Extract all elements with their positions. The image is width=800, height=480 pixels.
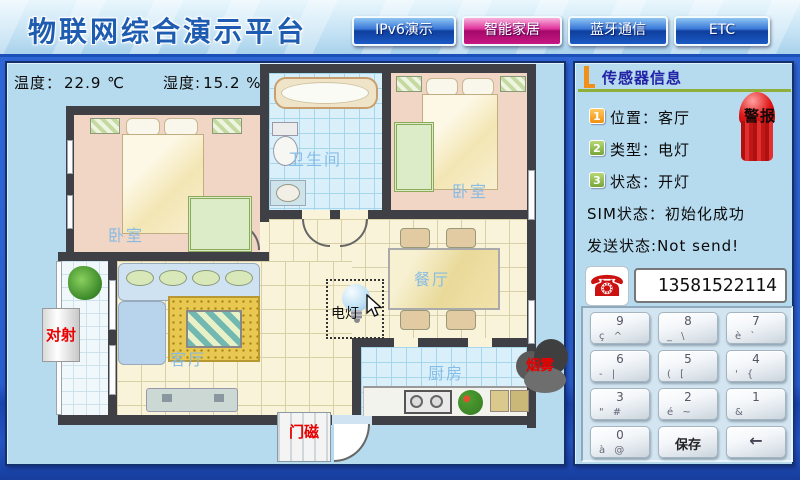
send-status-value: Not send! [657, 237, 739, 255]
humidity-label: 湿度: [163, 74, 201, 92]
section-bracket-icon [584, 66, 595, 88]
tab-etc[interactable]: ETC [674, 16, 770, 46]
key-main: 1 [727, 390, 785, 404]
tab-smart-home[interactable]: 智能家居 [462, 16, 562, 46]
phone-icon: ☎ [589, 269, 625, 303]
key-sub: è ` [735, 331, 758, 342]
alarm-label: 警报 [744, 105, 776, 126]
sim-status-label: SIM状态： [587, 205, 665, 223]
key-5[interactable]: 5( [ [658, 350, 718, 382]
backspace-icon: ← [727, 431, 785, 450]
key-6[interactable]: 6- | [590, 350, 650, 382]
door-magnet-device[interactable]: 门磁 [277, 412, 331, 462]
backspace-key[interactable]: ← [726, 426, 786, 458]
alarm-led-base [741, 121, 773, 161]
key-main: 5 [659, 352, 717, 366]
key-sub: _ \ [667, 331, 688, 342]
temperature-value: 22.9 ℃ [64, 74, 125, 92]
sensor-row-type: 类型：电灯 [610, 139, 690, 160]
key-main: 7 [727, 314, 785, 328]
key-sub: à @ [599, 445, 627, 456]
smoke-sensor-device[interactable]: 烟雾 [514, 335, 572, 395]
key-7[interactable]: 7è ` [726, 312, 786, 344]
send-status-row: 发送状态:Not send! [587, 235, 739, 256]
temperature-label: 温度： [14, 74, 62, 92]
floorplan-panel [5, 61, 566, 466]
humidity-value: 15.2 % [203, 74, 261, 92]
key-2[interactable]: 2é ~ [658, 388, 718, 420]
sensor-row-location: 位置：客厅 [610, 107, 690, 128]
key-main: 6 [591, 352, 649, 366]
key-9[interactable]: 9ç ^ [590, 312, 650, 344]
location-value: 客厅 [658, 109, 690, 127]
location-label: 位置： [610, 109, 658, 127]
smoke-label: 烟雾 [526, 355, 554, 375]
key-main: 8 [659, 314, 717, 328]
page-title: 物联网综合演示平台 [28, 10, 307, 50]
sim-status-value: 初始化成功 [665, 205, 745, 223]
key-1[interactable]: 1& [726, 388, 786, 420]
key-8[interactable]: 8_ \ [658, 312, 718, 344]
environment-readout: 温度：22.9 ℃湿度:15.2 % [14, 72, 264, 93]
key-3[interactable]: 3" # [590, 388, 650, 420]
tab-bluetooth[interactable]: 蓝牙通信 [568, 16, 668, 46]
row2-number-badge: 2 [589, 140, 605, 156]
phone-icon-box: ☎ [585, 266, 629, 306]
key-0[interactable]: 0à @ [590, 426, 650, 458]
key-main: 2 [659, 390, 717, 404]
tab-ipv6-demo[interactable]: IPv6演示 [352, 16, 456, 46]
key-4[interactable]: 4' { [726, 350, 786, 382]
key-main: 保存 [659, 434, 717, 453]
type-label: 类型： [610, 141, 658, 159]
key-main: 4 [727, 352, 785, 366]
row3-number-badge: 3 [589, 172, 605, 188]
iot-demo-app: 物联网综合演示平台 IPv6演示 智能家居 蓝牙通信 ETC 温度：22.9 ℃… [0, 0, 800, 480]
key-sub: - | [599, 369, 618, 380]
sim-status-row: SIM状态：初始化成功 [587, 203, 745, 224]
key-main: 9 [591, 314, 649, 328]
key-main: 3 [591, 390, 649, 404]
key-sub: " # [599, 407, 624, 418]
send-status-label: 发送状态: [587, 237, 657, 255]
key-main: 0 [591, 428, 649, 442]
key-sub: é ~ [667, 407, 694, 418]
top-header: 物联网综合演示平台 IPv6演示 智能家居 蓝牙通信 ETC [0, 0, 800, 57]
lamp-device[interactable]: 电灯 [326, 279, 384, 339]
lamp-label: 电灯 [331, 303, 359, 323]
beam-sensor-device[interactable]: 对射 [42, 308, 80, 362]
status-value: 开灯 [658, 173, 690, 191]
key-sub: ' { [735, 369, 756, 380]
type-value: 电灯 [658, 141, 690, 159]
row1-number-badge: 1 [589, 108, 605, 124]
key-sub: ç ^ [599, 331, 625, 342]
sensor-row-status: 状态：开灯 [610, 171, 690, 192]
key-sub: ( [ [667, 369, 687, 380]
sensor-panel-title: 传感器信息 [602, 67, 682, 88]
key-sub: & [735, 407, 746, 418]
phone-number-input[interactable] [634, 268, 787, 303]
status-label: 状态： [610, 173, 658, 191]
save-key[interactable]: 保存 [658, 426, 718, 458]
